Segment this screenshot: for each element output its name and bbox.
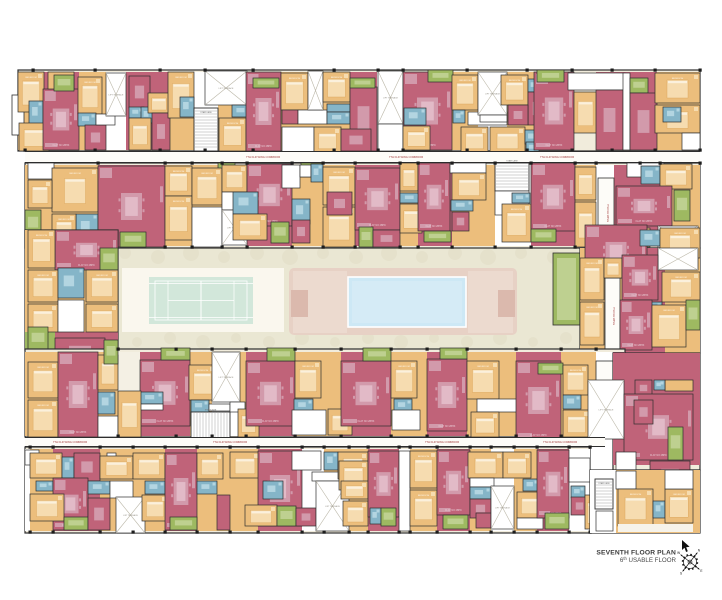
svg-text:LIFT TERRACE: LIFT TERRACE <box>219 87 234 90</box>
svg-text:BEDROOM: BEDROOM <box>175 77 186 79</box>
svg-text:LIFT TERRACE: LIFT TERRACE <box>325 505 340 508</box>
svg-text:BEDROOM: BEDROOM <box>663 310 674 312</box>
svg-text:FLAT NO 2BHK: FLAT NO 2BHK <box>426 225 443 228</box>
svg-text:FLAT NO 2BHK: FLAT NO 2BHK <box>369 224 386 227</box>
svg-text:FLAT NO 2BHK: FLAT NO 2BHK <box>545 225 562 228</box>
svg-text:BEDROOM: BEDROOM <box>630 494 641 496</box>
svg-text:BEDROOM: BEDROOM <box>58 219 69 221</box>
svg-text:FLAT NO 2BHK: FLAT NO 2BHK <box>445 509 462 512</box>
svg-text:LIFT TERRACE: LIFT TERRACE <box>123 514 138 517</box>
svg-text:LIFT TERRACE: LIFT TERRACE <box>495 507 510 510</box>
svg-text:FLAT NO 2BHK: FLAT NO 2BHK <box>53 144 70 147</box>
svg-text:BEDROOM: BEDROOM <box>37 275 48 277</box>
svg-text:BEDROOM: BEDROOM <box>289 78 300 80</box>
svg-text:BEDROOM: BEDROOM <box>37 367 48 369</box>
svg-text:BEDROOM: BEDROOM <box>302 366 313 368</box>
svg-text:7TH FLR WING CORRIDOR: 7TH FLR WING CORRIDOR <box>425 440 459 444</box>
svg-text:7TH FLR WING CORRIDOR: 7TH FLR WING CORRIDOR <box>213 440 247 444</box>
svg-text:BEDROOM: BEDROOM <box>331 77 342 79</box>
svg-text:BEDROOM: BEDROOM <box>173 171 184 173</box>
svg-text:BEDROOM: BEDROOM <box>197 370 208 372</box>
svg-text:BEDROOM: BEDROOM <box>398 366 409 368</box>
svg-text:BEDROOM: BEDROOM <box>477 366 488 368</box>
svg-text:BEDROOM: BEDROOM <box>173 201 184 203</box>
svg-text:LIFT TERRACE: LIFT TERRACE <box>383 97 398 100</box>
svg-text:W: W <box>677 551 680 555</box>
svg-text:E: E <box>700 569 702 573</box>
svg-text:BEDROOM: BEDROOM <box>674 233 685 235</box>
svg-text:BEDROOM: BEDROOM <box>96 275 107 277</box>
svg-text:7TH FLR WING CORRIDOR: 7TH FLR WING CORRIDOR <box>540 155 574 159</box>
svg-text:FLAT NO 2BHK: FLAT NO 2BHK <box>650 454 667 457</box>
svg-text:S: S <box>680 572 682 576</box>
svg-text:BEDROOM: BEDROOM <box>418 495 429 497</box>
svg-text:BEDROOM: BEDROOM <box>675 277 686 279</box>
svg-text:7TH FLR WING CORRIDOR: 7TH FLR WING CORRIDOR <box>389 155 423 159</box>
svg-text:FLAT NO 2BHK: FLAT NO 2BHK <box>358 420 375 423</box>
svg-text:BEDROOM: BEDROOM <box>672 78 683 80</box>
svg-text:BEDROOM: BEDROOM <box>201 173 212 175</box>
svg-text:FLAT NO 2BHK: FLAT NO 2BHK <box>530 434 547 437</box>
svg-text:FLAT NO 2BHK: FLAT NO 2BHK <box>636 220 653 223</box>
svg-text:7TH FLR WING CORRIDOR: 7TH FLR WING CORRIDOR <box>53 440 87 444</box>
svg-text:FLAT NO 2BHK: FLAT NO 2BHK <box>78 264 95 267</box>
svg-text:FLAT NO 2BHK: FLAT NO 2BHK <box>632 294 649 297</box>
svg-text:BEDROOM: BEDROOM <box>36 235 47 237</box>
svg-text:FLAT NO 2BHK: FLAT NO 2BHK <box>70 431 87 434</box>
svg-text:BEDROOM: BEDROOM <box>586 263 597 265</box>
svg-text:LIFT TERRACE: LIFT TERRACE <box>219 376 234 379</box>
svg-text:BEDROOM: BEDROOM <box>333 172 344 174</box>
svg-text:FLAT NO 2BHK: FLAT NO 2BHK <box>546 144 563 147</box>
svg-text:LIFT TERRACE: LIFT TERRACE <box>599 409 614 412</box>
svg-text:STAIRCASE: STAIRCASE <box>205 409 217 412</box>
svg-text:BEDROOM: BEDROOM <box>570 370 581 372</box>
svg-text:BEDROOM: BEDROOM <box>509 80 520 82</box>
svg-text:FLAT NO 2BHK: FLAT NO 2BHK <box>628 344 645 347</box>
svg-text:LIFT TERRACE: LIFT TERRACE <box>109 94 124 97</box>
svg-text:FLAT NO 2BHK: FLAT NO 2BHK <box>439 425 456 428</box>
svg-text:7TH FLR WING CORRIDOR: 7TH FLR WING CORRIDOR <box>543 440 577 444</box>
svg-text:STAIRCASE: STAIRCASE <box>200 111 212 114</box>
svg-text:BEDROOM: BEDROOM <box>673 494 684 496</box>
svg-text:BEDROOM: BEDROOM <box>84 82 95 84</box>
svg-text:7TH FLR WING CORRIDOR: 7TH FLR WING CORRIDOR <box>246 155 280 159</box>
svg-text:BEDROOM: BEDROOM <box>37 405 48 407</box>
svg-text:FLAT NO 2BHK: FLAT NO 2BHK <box>157 420 174 423</box>
svg-text:STAIRCASE: STAIRCASE <box>506 160 518 163</box>
svg-text:6th USABLE FLOOR: 6th USABLE FLOOR <box>620 556 677 565</box>
svg-text:BEDROOM: BEDROOM <box>69 173 80 175</box>
svg-text:BEDROOM: BEDROOM <box>586 307 597 309</box>
svg-text:LIFT TERRACE: LIFT TERRACE <box>485 93 500 96</box>
svg-text:7TH FLR WING: 7TH FLR WING <box>612 307 616 325</box>
svg-text:7TH FLR WING: 7TH FLR WING <box>606 204 610 222</box>
svg-text:BEDROOM: BEDROOM <box>25 77 36 79</box>
svg-text:SEVENTH FLOOR PLAN: SEVENTH FLOOR PLAN <box>596 550 676 557</box>
svg-text:BEDROOM: BEDROOM <box>459 80 470 82</box>
svg-text:BEDROOM: BEDROOM <box>511 209 522 211</box>
svg-text:FLAT NO 2BHK: FLAT NO 2BHK <box>262 420 279 423</box>
svg-text:BEDROOM: BEDROOM <box>418 456 429 458</box>
svg-text:STAIRCASE: STAIRCASE <box>598 482 610 485</box>
svg-text:FLAT NO 2BHK: FLAT NO 2BHK <box>255 145 272 148</box>
svg-text:BEDROOM: BEDROOM <box>227 123 238 125</box>
